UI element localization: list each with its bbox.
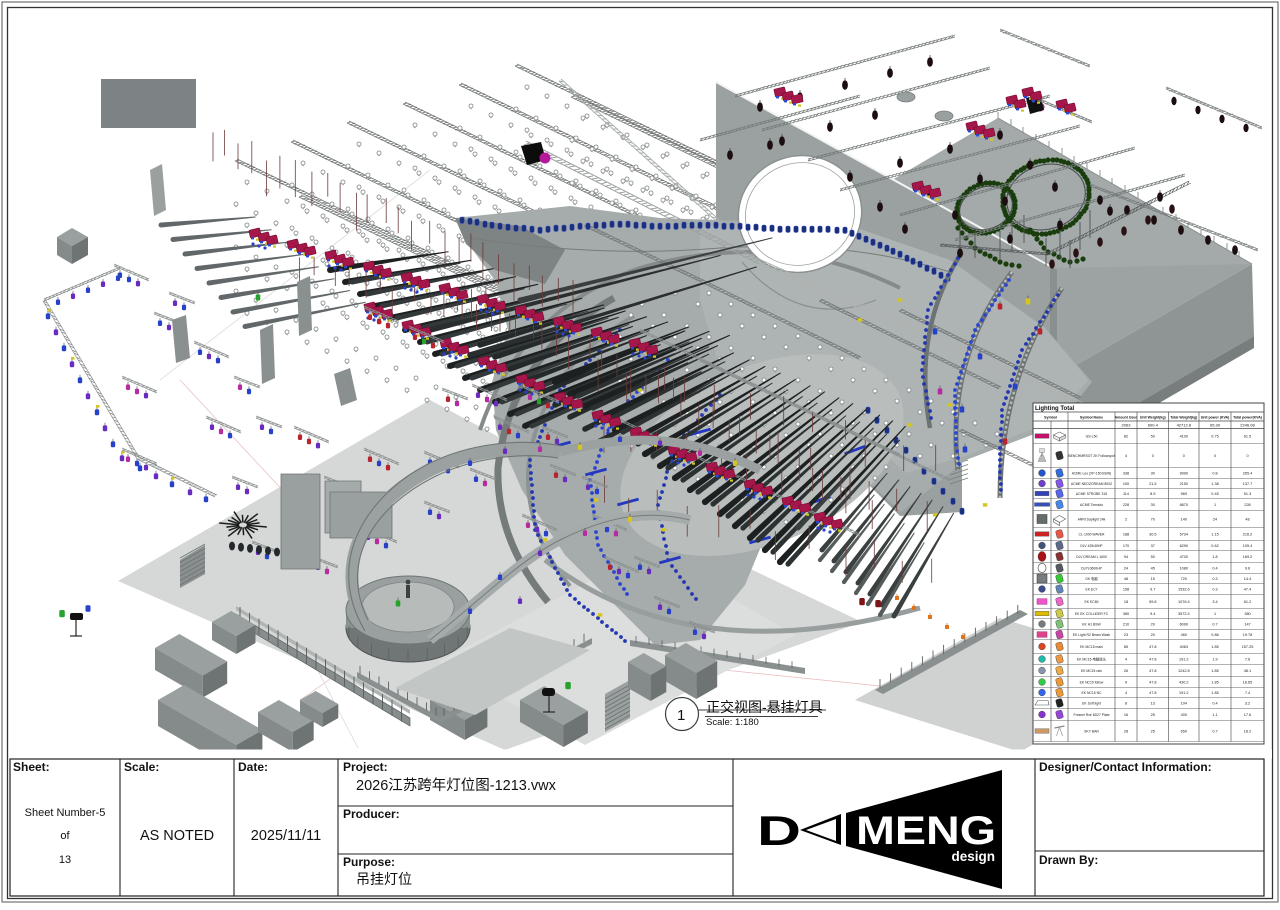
svg-text:48: 48: [1124, 577, 1128, 581]
svg-text:18: 18: [1124, 600, 1128, 604]
svg-text:265.4: 265.4: [1243, 472, 1253, 476]
svg-text:Sheet:: Sheet:: [13, 760, 50, 774]
svg-text:Scale:: Scale:: [124, 760, 159, 774]
svg-text:3.2: 3.2: [1245, 702, 1250, 706]
svg-text:51.3: 51.3: [1244, 492, 1251, 496]
svg-text:47.8: 47.8: [1149, 691, 1156, 695]
svg-text:Amount Used: Amount Used: [1115, 416, 1138, 420]
svg-text:29: 29: [1151, 623, 1155, 627]
svg-text:6290: 6290: [1180, 544, 1188, 548]
svg-text:42712.8: 42712.8: [1177, 423, 1192, 428]
svg-text:24: 24: [1213, 518, 1217, 522]
svg-text:460: 460: [1181, 633, 1187, 637]
svg-text:30: 30: [1151, 472, 1155, 476]
svg-text:0.8: 0.8: [1212, 472, 1217, 476]
svg-text:47.8: 47.8: [1149, 669, 1156, 673]
svg-text:6870: 6870: [1180, 503, 1188, 507]
svg-text:EK MC15 rain: EK MC15 rain: [1081, 669, 1102, 673]
svg-text:2026江苏跨年灯位图-1213.vwx: 2026江苏跨年灯位图-1213.vwx: [356, 777, 557, 794]
svg-text:4: 4: [1125, 691, 1127, 695]
svg-text:1.85: 1.85: [1211, 681, 1218, 685]
svg-text:24: 24: [1124, 567, 1128, 571]
svg-text:EK EC80: EK EC80: [1085, 600, 1099, 604]
svg-text:170: 170: [1123, 544, 1129, 548]
svg-text:1.85: 1.85: [1211, 691, 1218, 695]
svg-text:188: 188: [1123, 533, 1129, 537]
svg-text:157.25: 157.25: [1242, 645, 1254, 649]
svg-text:Total Weight(kg): Total Weight(kg): [1170, 416, 1197, 420]
svg-text:47.8: 47.8: [1149, 658, 1156, 662]
svg-text:30.5: 30.5: [1149, 533, 1156, 537]
svg-text:EK H1 BSW: EK H1 BSW: [1082, 623, 1101, 627]
svg-text:600.4: 600.4: [1148, 423, 1159, 428]
svg-text:BENCHMRSOT 2K Followspot: BENCHMRSOT 2K Followspot: [1068, 454, 1114, 458]
svg-text:137.7: 137.7: [1243, 482, 1253, 486]
svg-text:720: 720: [1181, 577, 1187, 581]
svg-text:9.4: 9.4: [1150, 612, 1155, 616]
svg-text:3572.4: 3572.4: [1178, 612, 1190, 616]
svg-text:9.6: 9.6: [1245, 567, 1250, 571]
svg-text:0.75: 0.75: [1211, 435, 1218, 439]
svg-text:3.4: 3.4: [1212, 600, 1217, 604]
svg-text:16: 16: [1124, 713, 1128, 717]
svg-text:19.78: 19.78: [1243, 633, 1253, 637]
svg-text:0.3: 0.3: [1212, 588, 1217, 592]
svg-text:EK MC15 main: EK MC15 main: [1080, 645, 1103, 649]
svg-text:4063: 4063: [1180, 645, 1188, 649]
svg-text:GK 电脑: GK 电脑: [1085, 576, 1098, 581]
svg-text:26: 26: [1124, 669, 1128, 673]
svg-text:23: 23: [1124, 633, 1128, 637]
svg-text:ARRI Daylight 24k: ARRI Daylight 24k: [1078, 518, 1106, 522]
svg-text:2025/11/11: 2025/11/11: [251, 828, 321, 844]
svg-text:2063: 2063: [1122, 423, 1132, 428]
svg-text:4100: 4100: [1180, 435, 1188, 439]
svg-text:104: 104: [1181, 702, 1187, 706]
svg-text:Unit power (KVA): Unit power (KVA): [1201, 416, 1230, 420]
svg-text:D: D: [757, 807, 801, 854]
svg-text:Producer:: Producer:: [343, 807, 400, 821]
svg-text:28: 28: [1124, 730, 1128, 734]
svg-text:9990: 9990: [1180, 472, 1188, 476]
svg-text:1.38: 1.38: [1211, 482, 1218, 486]
svg-text:MENG: MENG: [856, 809, 996, 853]
svg-text:CL-1000 WAVER: CL-1000 WAVER: [1078, 533, 1105, 537]
svg-text:47.8: 47.8: [1149, 645, 1156, 649]
svg-text:7.4: 7.4: [1245, 691, 1250, 695]
svg-text:4: 4: [1125, 658, 1127, 662]
svg-text:59.8: 59.8: [1149, 600, 1156, 604]
svg-text:EK EK COLLIDER FC: EK EK COLLIDER FC: [1075, 612, 1109, 616]
svg-text:Symbol: Symbol: [1044, 416, 1057, 420]
svg-text:94: 94: [1124, 555, 1128, 559]
svg-text:Total power(KVA): Total power(KVA): [1233, 416, 1262, 420]
svg-text:0: 0: [1183, 454, 1185, 458]
svg-text:158: 158: [1123, 588, 1129, 592]
svg-text:GS-L50: GS-L50: [1086, 435, 1098, 439]
svg-text:0.4: 0.4: [1212, 567, 1217, 571]
svg-text:400: 400: [1181, 713, 1187, 717]
svg-text:210: 210: [1123, 623, 1129, 627]
svg-text:Lighting Total: Lighting Total: [1035, 406, 1075, 412]
svg-text:design: design: [951, 849, 995, 864]
svg-text:1532.6: 1532.6: [1178, 588, 1190, 592]
svg-text:338: 338: [1123, 472, 1129, 476]
svg-text:Fresnel Rve 6D27 Plate: Fresnel Rve 6D27 Plate: [1074, 713, 1110, 717]
svg-text:228: 228: [1123, 503, 1129, 507]
svg-text:169.2: 169.2: [1243, 555, 1253, 559]
svg-text:2150: 2150: [1180, 482, 1188, 486]
svg-text:1: 1: [1214, 503, 1216, 507]
svg-text:8.5: 8.5: [1150, 492, 1155, 496]
svg-text:ACME NEOZOREAM 800Z: ACME NEOZOREAM 800Z: [1071, 482, 1112, 486]
svg-text:2: 2: [1125, 518, 1127, 522]
svg-text:100: 100: [1123, 482, 1129, 486]
svg-text:ACME Tornado: ACME Tornado: [1080, 503, 1103, 507]
svg-text:0.62: 0.62: [1211, 544, 1218, 548]
svg-text:0: 0: [1152, 454, 1154, 458]
svg-text:45: 45: [1151, 567, 1155, 571]
svg-text:4700: 4700: [1180, 555, 1188, 559]
svg-text:1.8: 1.8: [1212, 555, 1217, 559]
svg-text:30: 30: [1151, 503, 1155, 507]
svg-text:正交视图-悬挂灯具: 正交视图-悬挂灯具: [706, 699, 823, 715]
svg-text:380: 380: [1123, 612, 1129, 616]
svg-text:140: 140: [1181, 518, 1187, 522]
svg-text:0: 0: [1214, 454, 1216, 458]
svg-text:48.1: 48.1: [1244, 669, 1251, 673]
svg-text:20: 20: [1151, 633, 1155, 637]
svg-text:37: 37: [1151, 544, 1155, 548]
svg-text:of: of: [60, 830, 70, 842]
svg-text:18.2: 18.2: [1244, 730, 1251, 734]
svg-text:1.85: 1.85: [1211, 645, 1218, 649]
svg-text:430.2: 430.2: [1179, 681, 1189, 685]
svg-text:0.4: 0.4: [1212, 702, 1217, 706]
svg-text:0.7: 0.7: [1212, 730, 1217, 734]
svg-text:380: 380: [1244, 612, 1250, 616]
svg-text:21.5: 21.5: [1149, 482, 1156, 486]
svg-text:61.2: 61.2: [1244, 600, 1251, 604]
svg-text:1242.8: 1242.8: [1178, 669, 1190, 673]
svg-text:25: 25: [1151, 713, 1155, 717]
svg-text:114: 114: [1123, 492, 1129, 496]
svg-text:吊挂灯位: 吊挂灯位: [356, 871, 412, 887]
svg-text:147: 147: [1244, 623, 1250, 627]
svg-text:DLV 425/45HP: DLV 425/45HP: [1080, 544, 1103, 548]
svg-text:DLPL0600HP: DLPL0600HP: [1081, 567, 1102, 571]
svg-text:0.86: 0.86: [1211, 633, 1218, 637]
svg-text:15: 15: [1151, 577, 1155, 581]
svg-text:Unit Weight(kg): Unit Weight(kg): [1140, 416, 1166, 420]
svg-text:650: 650: [1181, 730, 1187, 734]
svg-text:SKY BAR: SKY BAR: [1084, 730, 1099, 734]
svg-text:Project:: Project:: [343, 760, 388, 774]
svg-text:Drawn By:: Drawn By:: [1039, 853, 1098, 867]
svg-text:0.7: 0.7: [1212, 623, 1217, 627]
svg-text:1080: 1080: [1180, 567, 1188, 571]
svg-text:Designer/Contact Information:: Designer/Contact Information:: [1039, 760, 1212, 774]
svg-text:Sheet Number-5: Sheet Number-5: [25, 807, 106, 819]
svg-text:EK Soft light: EK Soft light: [1082, 702, 1101, 706]
svg-text:228: 228: [1244, 503, 1250, 507]
svg-text:AS NOTED: AS NOTED: [140, 828, 214, 844]
svg-text:47.8: 47.8: [1149, 681, 1156, 685]
svg-text:5734: 5734: [1180, 533, 1188, 537]
svg-text:105.4: 105.4: [1243, 544, 1253, 548]
svg-text:216.2: 216.2: [1243, 533, 1253, 537]
svg-text:191.2: 191.2: [1179, 658, 1189, 662]
svg-text:1: 1: [677, 707, 685, 724]
svg-text:191.2: 191.2: [1179, 691, 1189, 695]
svg-text:EK NC15 follow: EK NC15 follow: [1080, 681, 1104, 685]
svg-text:1.1: 1.1: [1212, 713, 1217, 717]
svg-text:82: 82: [1124, 435, 1128, 439]
svg-text:48: 48: [1245, 518, 1249, 522]
svg-text:0: 0: [1246, 454, 1248, 458]
svg-text:0.3: 0.3: [1212, 577, 1217, 581]
svg-text:969: 969: [1181, 492, 1187, 496]
svg-text:2246.08: 2246.08: [1240, 423, 1255, 428]
svg-text:70: 70: [1151, 518, 1155, 522]
svg-text:7.6: 7.6: [1245, 658, 1250, 662]
svg-text:1.85: 1.85: [1211, 669, 1218, 673]
svg-text:EK NC15 NC: EK NC15 NC: [1082, 691, 1103, 695]
svg-text:47.4: 47.4: [1244, 588, 1251, 592]
svg-text:9.7: 9.7: [1150, 588, 1155, 592]
svg-text:50: 50: [1151, 555, 1155, 559]
svg-text:16.65: 16.65: [1243, 681, 1253, 685]
svg-text:Scale: 1:180: Scale: 1:180: [706, 717, 759, 728]
svg-text:6090: 6090: [1180, 623, 1188, 627]
svg-text:Purpose:: Purpose:: [343, 855, 395, 869]
svg-text:25: 25: [1151, 730, 1155, 734]
svg-text:EK MC15-电脑摇头: EK MC15-电脑摇头: [1077, 657, 1107, 662]
svg-text:4: 4: [1125, 454, 1127, 458]
svg-text:1.15: 1.15: [1211, 533, 1218, 537]
svg-text:Date:: Date:: [238, 760, 268, 774]
svg-text:1.9: 1.9: [1212, 658, 1217, 662]
svg-text:1076.4: 1076.4: [1178, 600, 1190, 604]
svg-text:EK Light R2 Beam Wash: EK Light R2 Beam Wash: [1073, 633, 1110, 637]
svg-text:85: 85: [1124, 645, 1128, 649]
svg-text:61.5: 61.5: [1244, 435, 1251, 439]
svg-text:ACME STROBE 315: ACME STROBE 315: [1076, 492, 1107, 496]
svg-text:65.39: 65.39: [1210, 423, 1221, 428]
svg-text:14.4: 14.4: [1244, 577, 1251, 581]
svg-text:Symbol Name: Symbol Name: [1080, 416, 1103, 420]
svg-text:50: 50: [1151, 435, 1155, 439]
svg-text:13: 13: [1151, 702, 1155, 706]
svg-text:9: 9: [1125, 681, 1127, 685]
svg-text:17.6: 17.6: [1244, 713, 1251, 717]
svg-text:ACME Leo (XP-150 BSW): ACME Leo (XP-150 BSW): [1072, 472, 1112, 476]
svg-text:DLV DREAM L 1600: DLV DREAM L 1600: [1076, 555, 1107, 559]
svg-text:13: 13: [59, 854, 71, 866]
svg-text:1: 1: [1214, 612, 1216, 616]
svg-text:8: 8: [1125, 702, 1127, 706]
svg-text:0.45: 0.45: [1211, 492, 1218, 496]
svg-text:EK EC7: EK EC7: [1085, 588, 1097, 592]
